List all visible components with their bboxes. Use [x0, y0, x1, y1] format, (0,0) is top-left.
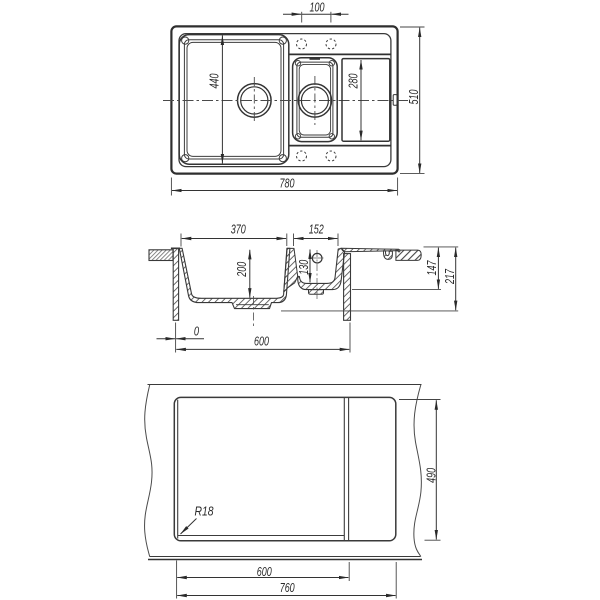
svg-text:217: 217 [442, 268, 457, 284]
svg-text:130: 130 [296, 259, 311, 275]
svg-text:0: 0 [194, 323, 200, 338]
svg-text:147: 147 [424, 260, 439, 276]
svg-text:370: 370 [231, 221, 247, 236]
svg-text:152: 152 [309, 221, 325, 236]
svg-text:600: 600 [257, 564, 273, 579]
svg-text:510: 510 [406, 89, 421, 105]
svg-text:760: 760 [280, 580, 296, 595]
svg-text:100: 100 [310, 0, 326, 15]
svg-text:R18: R18 [195, 504, 215, 519]
svg-text:490: 490 [423, 467, 438, 483]
svg-text:440: 440 [206, 73, 221, 89]
svg-text:200: 200 [234, 261, 249, 277]
svg-text:280: 280 [346, 73, 361, 89]
svg-text:600: 600 [254, 334, 270, 349]
svg-text:780: 780 [280, 176, 296, 191]
